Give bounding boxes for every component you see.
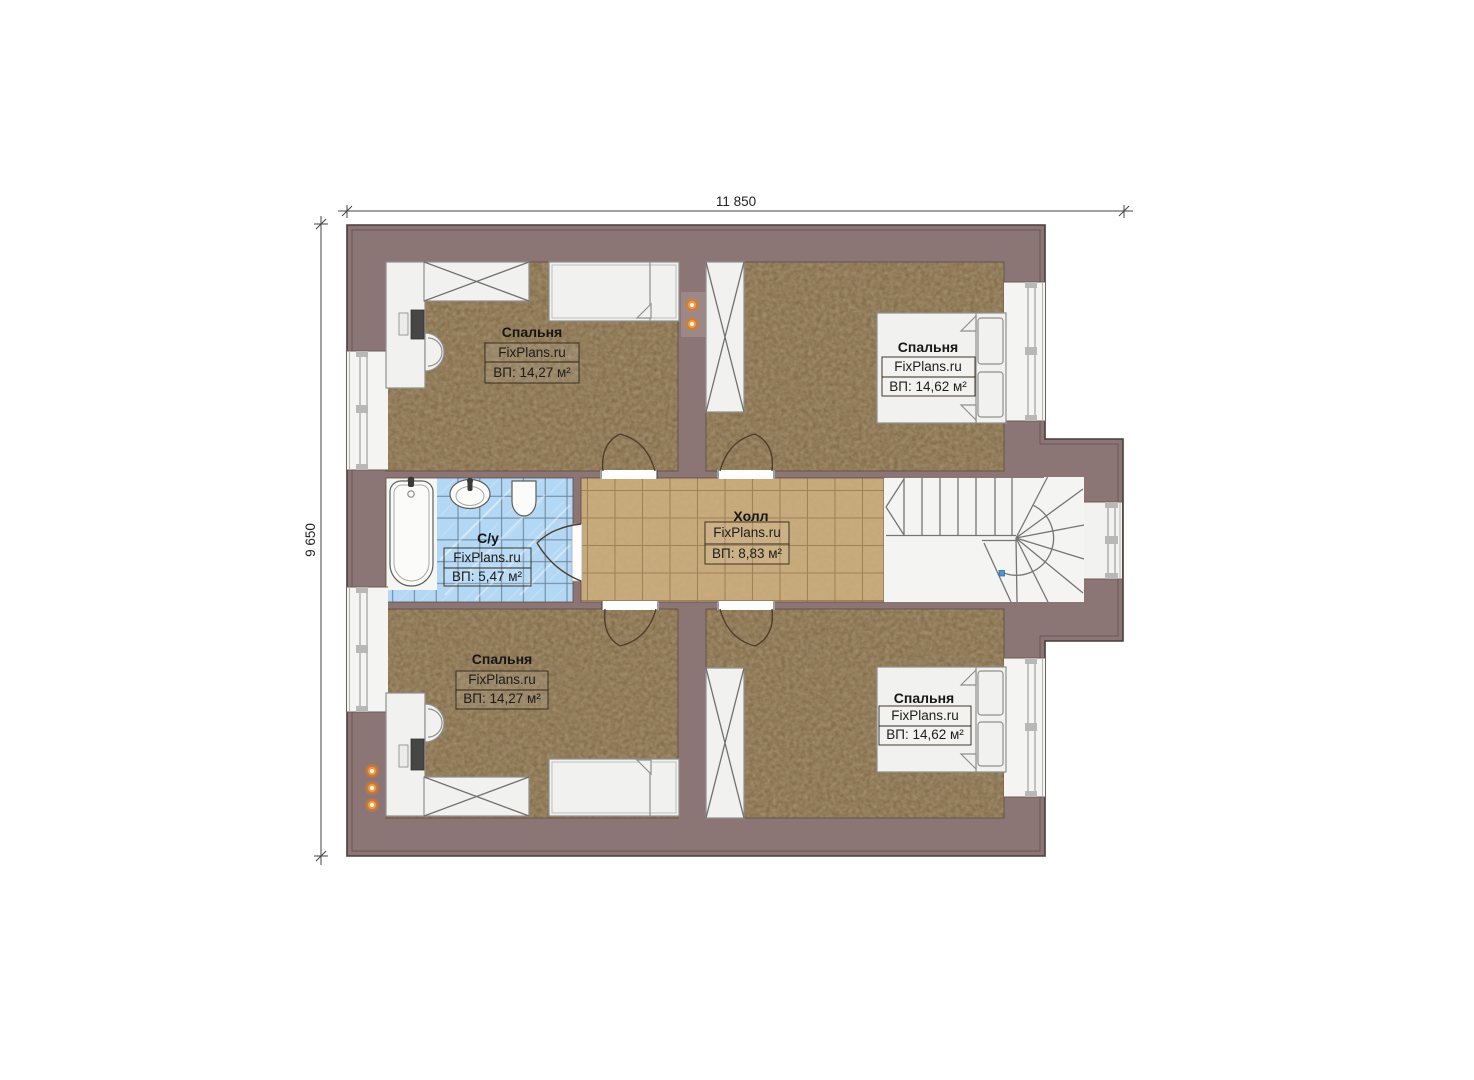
svg-text:ВП: 14,62 м²: ВП: 14,62 м² [886,727,964,742]
svg-text:ВП: 14,62 м²: ВП: 14,62 м² [889,379,967,394]
svg-text:Спальня: Спальня [502,324,562,340]
svg-text:FixPlans.ru: FixPlans.ru [453,550,521,565]
svg-text:ВП: 8,83 м²: ВП: 8,83 м² [712,546,783,561]
svg-text:Спальня: Спальня [472,651,532,667]
svg-text:FixPlans.ru: FixPlans.ru [468,672,536,687]
svg-text:Спальня: Спальня [898,339,958,355]
svg-text:Спальня: Спальня [894,690,954,706]
svg-text:С/у: С/у [477,530,499,546]
svg-text:ВП: 5,47 м²: ВП: 5,47 м² [452,569,523,584]
svg-text:FixPlans.ru: FixPlans.ru [894,359,962,374]
svg-text:FixPlans.ru: FixPlans.ru [713,525,781,540]
svg-text:9 650: 9 650 [303,523,318,557]
svg-text:ВП: 14,27 м²: ВП: 14,27 м² [463,691,541,706]
svg-text:11 850: 11 850 [716,194,756,209]
svg-text:ВП: 14,27 м²: ВП: 14,27 м² [493,365,571,380]
svg-text:FixPlans.ru: FixPlans.ru [891,708,959,723]
svg-text:FixPlans.ru: FixPlans.ru [498,345,566,360]
